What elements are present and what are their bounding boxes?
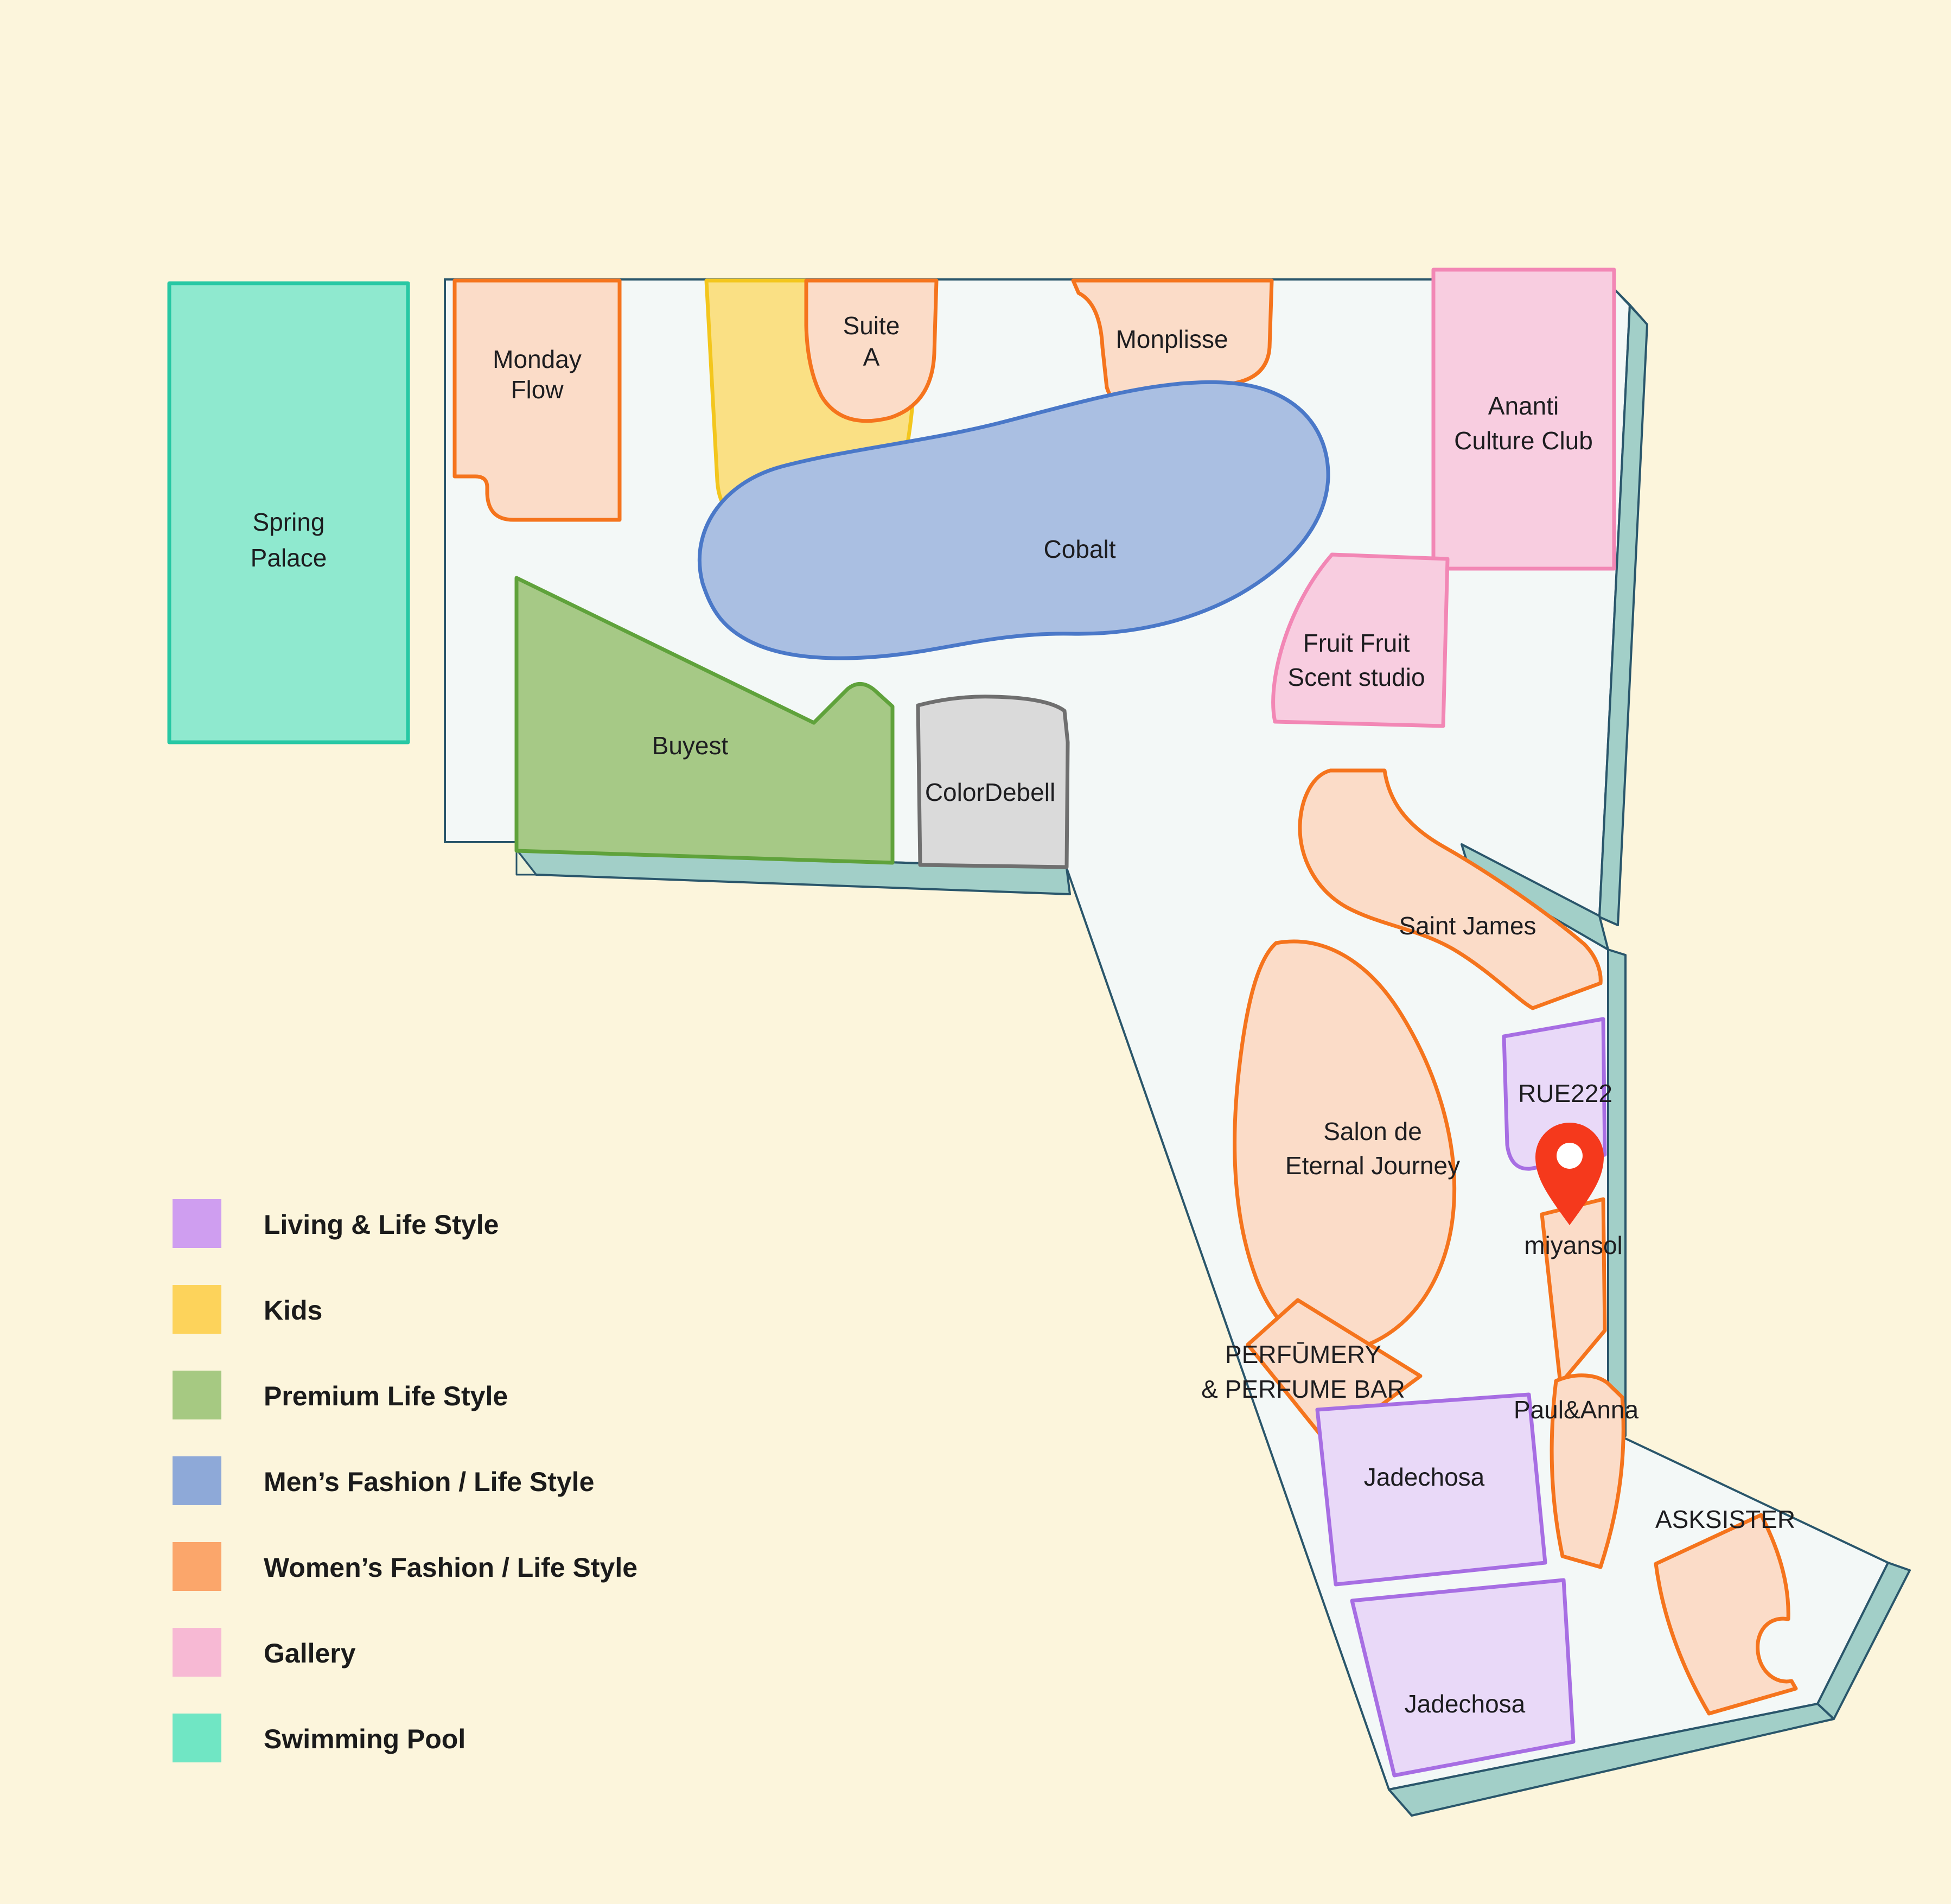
floorplan-page: Spring Palace Monday Flow Suite A Monpli…: [0, 0, 1951, 1904]
shop-label-suite-a-2: A: [863, 343, 880, 371]
shop-label-miyansol: miyansol: [1524, 1231, 1623, 1259]
legend-label-premium: Premium Life Style: [264, 1381, 508, 1411]
legend-label-gallery: Gallery: [264, 1638, 356, 1669]
legend-swatch-womens: [173, 1542, 221, 1591]
shop-label-asksister: ASKSISTER: [1655, 1505, 1795, 1533]
shop-label-ananti-2: Culture Club: [1454, 426, 1593, 455]
shop-label-colordebell: ColorDebell: [925, 778, 1055, 806]
legend-swatch-mens: [173, 1456, 221, 1505]
shop-label-perfumery-1: PERFŪMERY: [1225, 1340, 1381, 1368]
shop-label-jadechosa-lower: Jadechosa: [1405, 1690, 1526, 1718]
shop-label-monday-flow-1: Monday: [493, 345, 582, 373]
legend-swatch-pool: [173, 1714, 221, 1762]
legend: Living & Life Style Kids Premium Life St…: [173, 1199, 637, 1762]
legend-swatch-gallery: [173, 1628, 221, 1677]
shop-label-paul-anna: Paul&Anna: [1514, 1396, 1639, 1424]
location-pin-hole: [1557, 1143, 1583, 1169]
legend-label-pool: Swimming Pool: [264, 1724, 466, 1754]
shop-label-perfumery-2: & PERFUME BAR: [1201, 1375, 1405, 1403]
shop-label-fruit-fruit-2: Scent studio: [1287, 663, 1425, 691]
shop-label-spring-palace-2: Palace: [251, 544, 327, 572]
shop-label-monplisse: Monplisse: [1115, 325, 1228, 353]
shop-label-buyest: Buyest: [652, 731, 729, 760]
shop-label-monday-flow-2: Flow: [511, 375, 564, 404]
legend-swatch-premium: [173, 1371, 221, 1419]
legend-label-mens: Men’s Fashion / Life Style: [264, 1467, 594, 1497]
legend-swatch-living: [173, 1199, 221, 1248]
legend-label-womens: Women’s Fashion / Life Style: [264, 1552, 637, 1583]
shop-label-salon-1: Salon de: [1323, 1117, 1422, 1145]
shop-label-cobalt: Cobalt: [1044, 535, 1116, 563]
floorplan-map: Spring Palace Monday Flow Suite A Monpli…: [0, 0, 1951, 1904]
shop-label-saint-james: Saint James: [1399, 912, 1536, 940]
legend-label-living: Living & Life Style: [264, 1209, 499, 1240]
shop-label-fruit-fruit-1: Fruit Fruit: [1303, 629, 1410, 657]
shop-label-jadechosa-upper: Jadechosa: [1364, 1463, 1485, 1491]
shop-label-spring-palace-1: Spring: [253, 508, 325, 536]
legend-label-kids: Kids: [264, 1295, 322, 1326]
shop-label-suite-a-1: Suite: [843, 311, 900, 340]
shop-label-ananti-1: Ananti: [1488, 392, 1559, 420]
wall-right-lower: [1608, 950, 1625, 1436]
shop-label-rue222: RUE222: [1518, 1079, 1612, 1107]
legend-swatch-kids: [173, 1285, 221, 1334]
shop-label-salon-2: Eternal Journey: [1285, 1151, 1460, 1180]
